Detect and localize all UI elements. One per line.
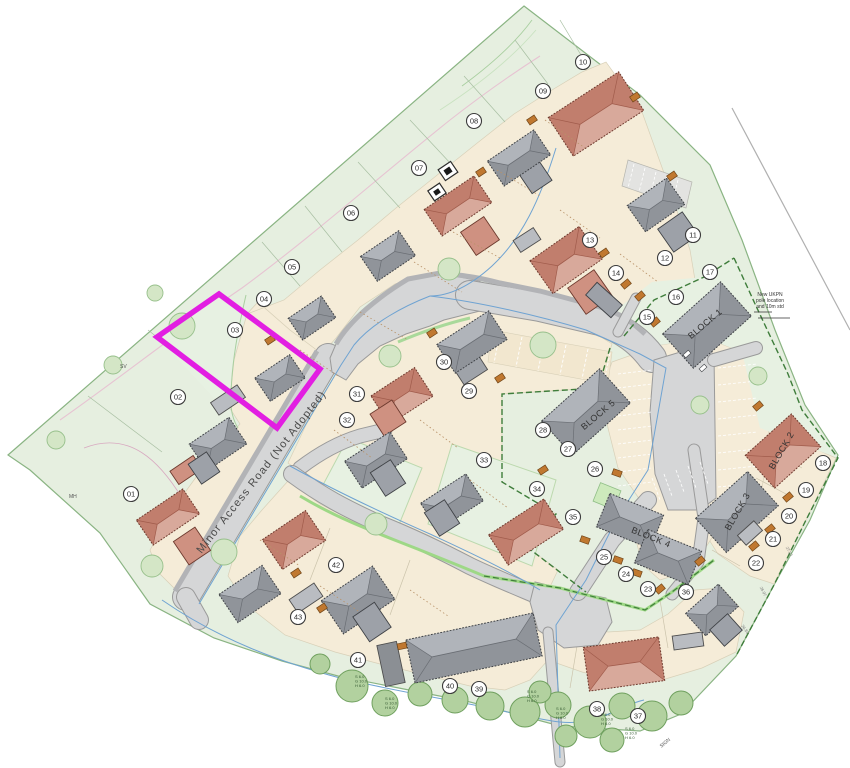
svg-text:H 6.0: H 6.0 [625, 735, 635, 740]
svg-text:14: 14 [612, 269, 620, 278]
svg-text:20: 20 [785, 512, 793, 521]
svg-text:13: 13 [586, 236, 594, 245]
svg-text:19: 19 [802, 486, 810, 495]
svg-text:29: 29 [465, 387, 473, 396]
svg-text:H 6.0: H 6.0 [385, 705, 395, 710]
svg-text:10: 10 [579, 58, 587, 67]
svg-text:12: 12 [661, 254, 669, 263]
svg-text:32: 32 [343, 416, 351, 425]
svg-text:24: 24 [622, 570, 630, 579]
svg-text:03: 03 [231, 326, 239, 335]
svg-text:06: 06 [347, 209, 355, 218]
svg-text:09: 09 [539, 87, 547, 96]
svg-text:17: 17 [706, 268, 714, 277]
svg-text:and 10m std: and 10m std [756, 304, 784, 310]
svg-text:36: 36 [682, 588, 690, 597]
svg-text:37: 37 [634, 712, 642, 721]
svg-text:25: 25 [600, 553, 608, 562]
svg-text:SV: SV [120, 364, 127, 370]
svg-text:31: 31 [353, 390, 361, 399]
svg-text:05: 05 [288, 263, 296, 272]
svg-text:22: 22 [752, 559, 760, 568]
svg-text:08: 08 [470, 117, 478, 126]
svg-text:04: 04 [260, 295, 268, 304]
svg-text:33: 33 [480, 456, 488, 465]
svg-text:42: 42 [332, 561, 340, 570]
svg-text:34: 34 [533, 485, 541, 494]
svg-text:28: 28 [539, 426, 547, 435]
svg-text:H 6.0: H 6.0 [601, 721, 611, 726]
svg-text:H 6.0: H 6.0 [556, 715, 566, 720]
svg-text:26: 26 [591, 465, 599, 474]
svg-text:11: 11 [689, 231, 697, 240]
svg-text:01: 01 [127, 490, 135, 499]
svg-text:30: 30 [440, 358, 448, 367]
svg-text:MH: MH [69, 494, 77, 500]
svg-text:35: 35 [569, 513, 577, 522]
svg-text:27: 27 [564, 445, 572, 454]
svg-text:15: 15 [643, 313, 651, 322]
svg-text:39: 39 [475, 685, 483, 694]
svg-text:21: 21 [769, 535, 777, 544]
svg-text:02: 02 [174, 393, 182, 402]
svg-text:18: 18 [819, 459, 827, 468]
svg-text:38: 38 [593, 705, 601, 714]
svg-text:40: 40 [446, 682, 454, 691]
svg-text:43: 43 [294, 613, 302, 622]
svg-text:16: 16 [672, 293, 680, 302]
svg-text:41: 41 [354, 656, 362, 665]
svg-text:H 6.0: H 6.0 [355, 683, 365, 688]
svg-text:H 6.0: H 6.0 [527, 698, 537, 703]
svg-text:07: 07 [415, 164, 423, 173]
svg-text:23: 23 [644, 585, 652, 594]
